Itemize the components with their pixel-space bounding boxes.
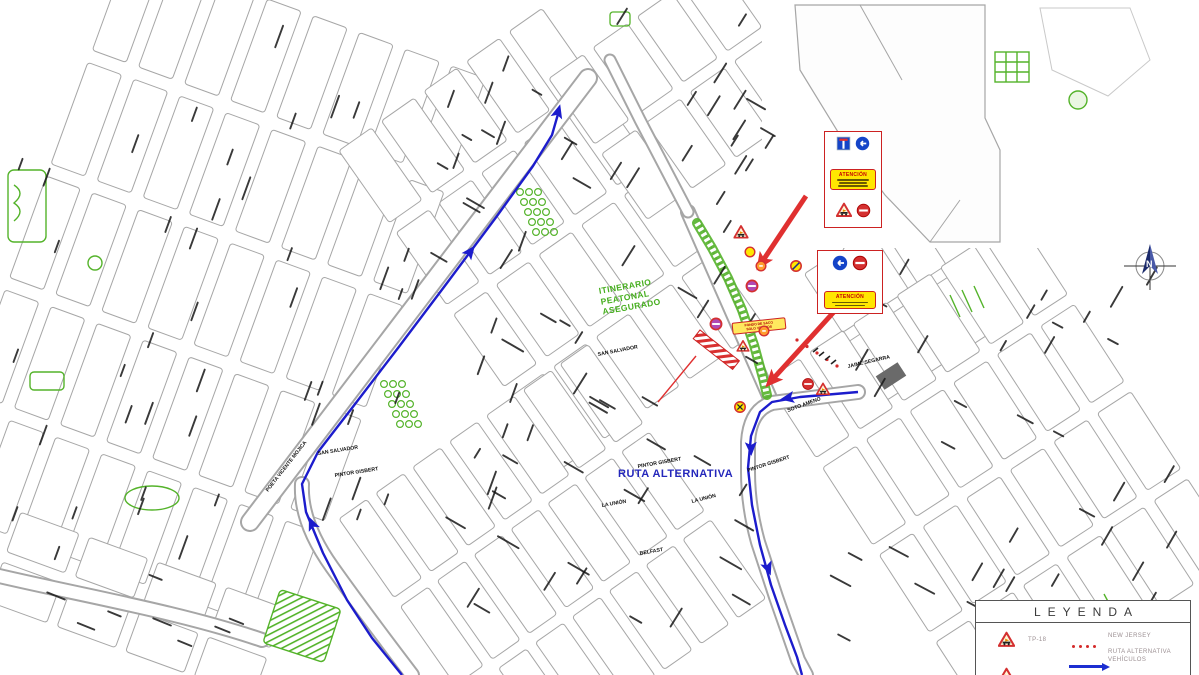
noentryRed-sign-icon bbox=[802, 378, 815, 391]
compass-n-label: N bbox=[1146, 259, 1153, 269]
tp18-sign-icon bbox=[734, 225, 749, 240]
legend-route-label-2: VEHÍCULOS bbox=[1108, 657, 1146, 663]
sign-board-1: ATENCIÓN bbox=[824, 131, 882, 228]
street-map-canvas: POETA VICENTE MOJICASAN SALVADORPINTOR G… bbox=[0, 0, 1199, 675]
noentry-sign-icon bbox=[709, 317, 723, 331]
legend-new-jersey-label: NEW JERSEY bbox=[1108, 633, 1151, 639]
tp18-sign-icon bbox=[816, 382, 830, 396]
roadworks-triangle-icon bbox=[836, 202, 852, 223]
legend-tp18-label: TP-18 bbox=[1028, 637, 1046, 643]
noentry-sign-icon bbox=[745, 279, 759, 293]
legend-new-jersey-sample bbox=[1072, 635, 1100, 653]
street-name-label: LA UNIÓN bbox=[691, 491, 717, 505]
attention-title: ATENCIÓN bbox=[827, 294, 873, 300]
no-entry-icon bbox=[856, 203, 871, 223]
orange-sign-icon bbox=[755, 260, 767, 272]
compass-north-icon: N bbox=[1122, 238, 1178, 294]
legend: LEYENDA TP-18 NEW JERSEY RUTA ALTERNATIV… bbox=[975, 600, 1191, 675]
attention-plate-1: ATENCIÓN bbox=[830, 169, 876, 190]
orange-sign-icon bbox=[758, 325, 770, 337]
tp18-sign-icon bbox=[737, 340, 750, 353]
attention-title: ATENCIÓN bbox=[833, 172, 873, 178]
legend-title: LEYENDA bbox=[976, 601, 1190, 623]
legend-route-arrow-sample bbox=[1069, 665, 1103, 668]
yellowStripe-sign-icon bbox=[790, 260, 803, 273]
no-entry-icon bbox=[852, 255, 868, 276]
dead-end-sign-icon bbox=[836, 136, 851, 156]
sign-board-2: ATENCIÓN bbox=[817, 250, 883, 314]
yellowX-sign-icon bbox=[734, 401, 747, 414]
ruta-alternativa-label: RUTA ALTERNATIVA bbox=[618, 468, 733, 480]
legend-tp18-icon bbox=[998, 631, 1015, 653]
mandatory-left-icon bbox=[855, 136, 870, 156]
attention-plate-2: ATENCIÓN bbox=[824, 291, 876, 309]
legend-route-label-1: RUTA ALTERNATIVA bbox=[1108, 649, 1171, 655]
mandatory-left-icon bbox=[832, 255, 848, 276]
yellow-sign-icon bbox=[744, 246, 756, 258]
traffic-plan-map: POETA VICENTE MOJICASAN SALVADORPINTOR G… bbox=[0, 0, 1199, 675]
legend-tp18b-icon bbox=[998, 667, 1015, 675]
